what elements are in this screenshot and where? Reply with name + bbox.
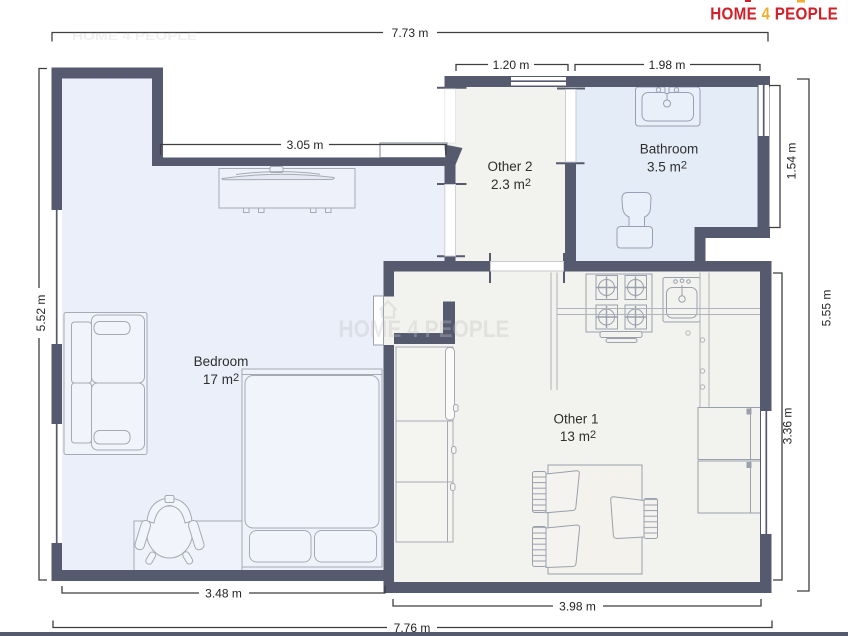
svg-text:Bathroom: Bathroom	[640, 142, 699, 157]
svg-text:3.48 m: 3.48 m	[205, 586, 242, 600]
svg-text:1.20 m: 1.20 m	[493, 58, 530, 72]
svg-text:Bedroom: Bedroom	[194, 354, 249, 369]
svg-text:3.36 m: 3.36 m	[781, 408, 795, 445]
svg-text:1.54 m: 1.54 m	[785, 143, 799, 180]
svg-text:3.05 m: 3.05 m	[287, 138, 324, 152]
svg-text:3.98 m: 3.98 m	[559, 599, 596, 613]
svg-text:5.55 m: 5.55 m	[820, 290, 834, 327]
svg-text:HOME 4 PEOPLE: HOME 4 PEOPLE	[710, 4, 838, 23]
svg-text:1.98 m: 1.98 m	[649, 58, 686, 72]
svg-text:Other 1: Other 1	[553, 412, 598, 427]
svg-text:5.52 m: 5.52 m	[34, 295, 48, 332]
svg-text:Other 2: Other 2	[487, 159, 532, 174]
svg-text:HOME 4 PEOPLE: HOME 4 PEOPLE	[72, 29, 197, 43]
svg-text:HOME 4 PEOPLE: HOME 4 PEOPLE	[339, 316, 510, 343]
svg-text:7.73 m: 7.73 m	[392, 26, 429, 40]
